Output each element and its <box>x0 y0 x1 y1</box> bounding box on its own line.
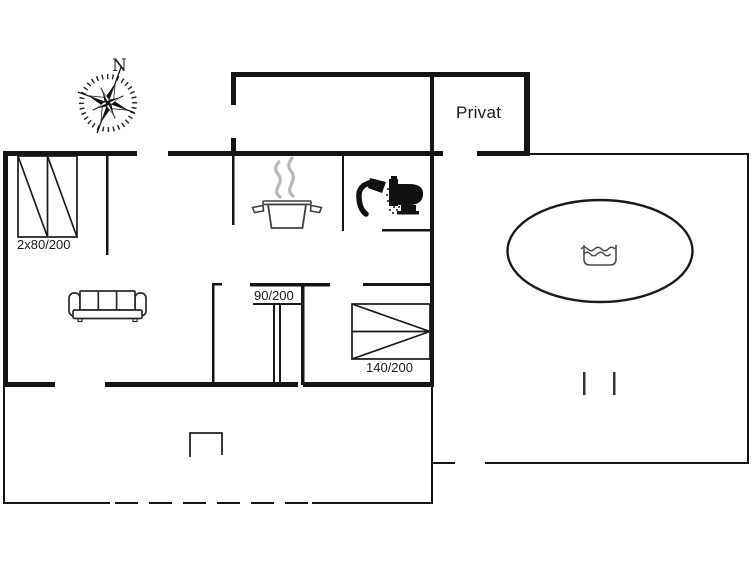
wall <box>212 283 215 385</box>
wall <box>363 283 430 286</box>
bed-140-label: 140/200 <box>366 360 413 375</box>
wall <box>231 72 236 105</box>
bed-twin-label: 2x80/200 <box>17 237 71 252</box>
wall <box>105 382 298 387</box>
grill-icon <box>190 433 222 457</box>
terrace-edge <box>3 387 5 504</box>
privat-room-label: Privat <box>456 103 501 123</box>
cooking-pot-icon <box>253 158 322 228</box>
wall <box>477 151 530 156</box>
wall <box>303 382 434 387</box>
terrace-edge <box>431 387 433 504</box>
sofa-icon <box>69 291 146 322</box>
wall <box>530 153 749 155</box>
wall <box>233 72 530 77</box>
compass-north-label: N <box>112 56 127 76</box>
wall <box>382 229 434 232</box>
outer-walls <box>3 72 530 387</box>
wall <box>524 72 530 156</box>
floor-plan: N Privat 2x80/200 90/200 140/200 <box>0 0 755 566</box>
wall <box>747 153 749 464</box>
wall <box>231 138 236 152</box>
bed-90-label: 90/200 <box>254 288 294 303</box>
wall <box>301 283 305 385</box>
wall <box>232 156 235 225</box>
steam-icon <box>276 158 294 197</box>
compass-rose-icon <box>67 56 147 142</box>
wall <box>106 156 109 255</box>
bed-140-icon <box>352 304 430 359</box>
wall <box>3 382 55 387</box>
water-icon <box>581 245 616 265</box>
wall <box>485 462 749 464</box>
toilet-icon <box>389 176 423 215</box>
whirlpool-icon <box>508 200 693 302</box>
terrace-outline <box>3 387 433 504</box>
double-bed-icon <box>18 156 77 237</box>
wall <box>212 283 222 286</box>
wall <box>168 151 443 156</box>
bunk-bed-icon <box>253 304 305 383</box>
floor-plan-drawing <box>0 0 755 566</box>
wall <box>433 462 455 464</box>
wall <box>250 283 330 287</box>
wall <box>3 151 8 387</box>
door-marks <box>583 372 616 395</box>
wall <box>342 156 344 231</box>
